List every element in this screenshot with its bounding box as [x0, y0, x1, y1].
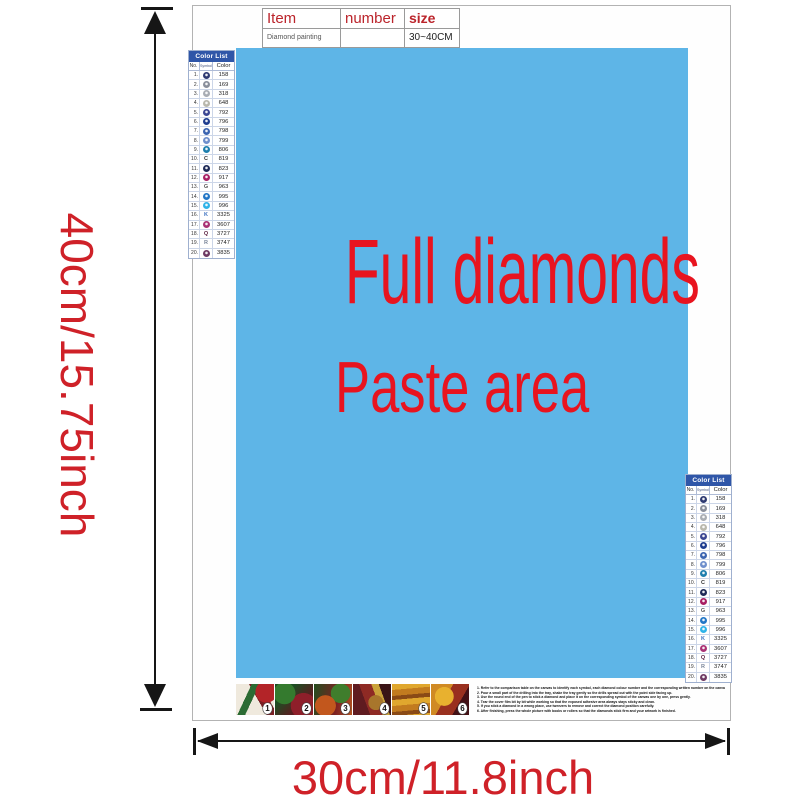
height-arrow-bottom-cap — [140, 708, 172, 711]
instruction-line: 1. Refer to the comparison table on the … — [477, 686, 725, 691]
color-row-number: 16. — [686, 635, 697, 643]
color-row: 2.169 — [686, 504, 731, 513]
color-row-symbol — [697, 673, 710, 682]
color-row-number: 11. — [686, 588, 697, 596]
diamond-color-dot — [203, 193, 210, 200]
color-row-code: 806 — [710, 570, 731, 578]
color-row: 10.C819 — [189, 155, 234, 164]
color-row-number: 4. — [189, 99, 200, 107]
height-arrow-line — [154, 16, 156, 704]
diamond-color-dot — [700, 505, 707, 512]
instructions-block: 1. Refer to the comparison table on the … — [477, 686, 725, 713]
color-row-symbol — [200, 164, 213, 172]
color-row-number: 2. — [686, 504, 697, 512]
color-row-symbol: C — [200, 155, 213, 163]
color-row-code: 823 — [710, 588, 731, 596]
color-row-symbol — [200, 146, 213, 154]
color-row: 15.996 — [686, 626, 731, 635]
diamond-color-dot — [203, 174, 210, 181]
color-row: 2.169 — [189, 80, 234, 89]
color-row-number: 5. — [189, 108, 200, 116]
color-row-symbol — [697, 626, 710, 634]
color-row-code: 823 — [213, 164, 234, 172]
color-row-code: 796 — [710, 542, 731, 550]
color-row-number: 6. — [686, 542, 697, 550]
diamond-symbol-letter: R — [701, 664, 705, 670]
width-arrow-left-cap — [193, 728, 196, 755]
diamond-color-dot — [700, 496, 707, 503]
color-row-symbol: G — [697, 607, 710, 615]
color-row-symbol — [200, 202, 213, 210]
color-row-symbol: Q — [200, 230, 213, 238]
color-row: 11.823 — [686, 588, 731, 597]
item-table: Item number size Diamond painting 30~40C… — [262, 8, 460, 48]
steps-strip: 123456 — [236, 684, 470, 715]
color-row-symbol — [200, 90, 213, 98]
color-row-code: 995 — [710, 616, 731, 624]
color-row-code: 3747 — [710, 663, 731, 671]
diamond-color-dot — [203, 202, 210, 209]
color-row-code: 798 — [213, 127, 234, 135]
color-row-number: 11. — [189, 164, 200, 172]
color-list-left: Color List No. Symbol Color 1.1582.1693.… — [188, 50, 235, 259]
color-row: 17.3607 — [189, 221, 234, 230]
color-row-symbol — [697, 616, 710, 624]
color-row-code: 158 — [710, 495, 731, 503]
color-row-symbol — [200, 136, 213, 144]
color-row: 18.Q3727 — [686, 654, 731, 663]
diamond-color-dot — [700, 514, 707, 521]
step-image-5: 5 — [392, 684, 430, 715]
color-row: 16.K3325 — [686, 635, 731, 644]
color-list-title: Color List — [686, 475, 731, 486]
color-row-code: 648 — [213, 99, 234, 107]
diamond-symbol-letter: G — [204, 184, 208, 190]
color-row-code: 3325 — [213, 211, 234, 219]
diamond-color-dot — [700, 524, 707, 531]
color-row-symbol — [200, 80, 213, 88]
color-row: 8.799 — [189, 136, 234, 145]
diamond-symbol-letter: R — [204, 240, 208, 246]
color-row-number: 10. — [686, 579, 697, 587]
color-row-symbol — [697, 495, 710, 503]
color-row-code: 3325 — [710, 635, 731, 643]
diamond-color-dot — [203, 250, 210, 257]
diamond-color-dot — [700, 542, 707, 549]
diamond-color-dot — [700, 589, 707, 596]
step-image-2: 2 — [275, 684, 313, 715]
diamond-color-dot — [203, 90, 210, 97]
height-dimension-label: 40cm/15.75inch — [50, 213, 104, 538]
color-row-symbol — [697, 542, 710, 550]
color-row-code: 799 — [213, 136, 234, 144]
color-row: 6.796 — [686, 542, 731, 551]
item-table-header-row: Item number size — [263, 9, 459, 29]
color-row-number: 6. — [189, 118, 200, 126]
color-row-code: 819 — [710, 579, 731, 587]
color-row-number: 13. — [686, 607, 697, 615]
diamond-color-dot — [203, 81, 210, 88]
step-number-badge: 5 — [419, 703, 428, 714]
color-row: 18.Q3727 — [189, 230, 234, 239]
color-row-symbol — [697, 598, 710, 606]
color-row: 19.R3747 — [686, 663, 731, 672]
color-row-symbol — [697, 560, 710, 568]
height-arrow-top-cap — [141, 7, 173, 10]
no-column-header: No. — [189, 62, 200, 70]
number-value — [341, 29, 405, 48]
color-row: 5.792 — [686, 532, 731, 541]
diamond-color-dot — [203, 118, 210, 125]
arrow-down-icon — [144, 684, 166, 707]
color-row: 14.995 — [686, 616, 731, 625]
color-row-code: 798 — [710, 551, 731, 559]
color-row-code: 917 — [213, 174, 234, 182]
step-image-3: 3 — [314, 684, 352, 715]
color-row-symbol: R — [200, 239, 213, 247]
color-row: 10.C819 — [686, 579, 731, 588]
color-row: 17.3607 — [686, 645, 731, 654]
color-row: 7.798 — [686, 551, 731, 560]
size-value: 30~40CM — [405, 29, 459, 48]
color-row-code: 806 — [213, 146, 234, 154]
color-row-code: 799 — [710, 560, 731, 568]
diamond-color-dot — [203, 221, 210, 228]
color-row-symbol — [697, 514, 710, 522]
step-number-badge: 6 — [458, 703, 467, 714]
arrow-right-icon — [705, 733, 726, 749]
number-header: number — [341, 9, 405, 28]
color-row-number: 9. — [686, 570, 697, 578]
color-row-code: 318 — [710, 514, 731, 522]
color-row-symbol — [200, 221, 213, 229]
color-list-title: Color List — [189, 51, 234, 62]
color-row-symbol — [200, 127, 213, 135]
diamond-color-dot — [203, 165, 210, 172]
product-diagram: Item number size Diamond painting 30~40C… — [0, 0, 800, 800]
color-row-number: 20. — [686, 673, 697, 682]
arrow-left-icon — [197, 733, 218, 749]
diamond-color-dot — [203, 137, 210, 144]
size-header: size — [405, 9, 459, 28]
item-table-value-row: Diamond painting 30~40CM — [263, 29, 459, 48]
color-row-symbol: C — [697, 579, 710, 587]
symbol-column-header: Symbol — [200, 62, 213, 70]
color-row-number: 17. — [189, 221, 200, 229]
color-row-code: 3607 — [710, 645, 731, 653]
color-row-symbol — [200, 192, 213, 200]
item-header: Item — [263, 9, 341, 28]
color-row: 9.806 — [189, 146, 234, 155]
color-row-code: 963 — [213, 183, 234, 191]
no-column-header: No. — [686, 486, 697, 494]
color-row-symbol: R — [697, 663, 710, 671]
diamond-color-dot — [203, 146, 210, 153]
color-row-number: 5. — [686, 532, 697, 540]
color-row-number: 17. — [686, 645, 697, 653]
step-number-badge: 4 — [380, 703, 389, 714]
color-row: 7.798 — [189, 127, 234, 136]
arrow-up-icon — [144, 11, 166, 34]
step-image-6: 6 — [431, 684, 469, 715]
color-row-number: 1. — [686, 495, 697, 503]
diamond-symbol-letter: Q — [701, 655, 705, 661]
color-row-number: 14. — [189, 192, 200, 200]
color-row-number: 12. — [189, 174, 200, 182]
color-row-code: 3835 — [213, 249, 234, 258]
color-row-code: 169 — [213, 80, 234, 88]
color-row-symbol — [697, 551, 710, 559]
color-row-code: 819 — [213, 155, 234, 163]
color-list-rows: 1.1582.1693.3184.6485.7926.7967.7988.799… — [189, 71, 234, 258]
color-row-number: 15. — [189, 202, 200, 210]
diamond-color-dot — [700, 552, 707, 559]
color-row-symbol — [697, 532, 710, 540]
color-row-number: 3. — [686, 514, 697, 522]
color-row-number: 4. — [686, 523, 697, 531]
color-row-number: 7. — [686, 551, 697, 559]
color-row-symbol — [200, 249, 213, 258]
color-row-number: 19. — [686, 663, 697, 671]
diamond-symbol-letter: K — [701, 636, 705, 642]
color-row: 15.996 — [189, 202, 234, 211]
paste-area-title-text: Full diamonds — [345, 226, 700, 318]
color-row-symbol — [697, 523, 710, 531]
color-row-number: 3. — [189, 90, 200, 98]
color-row-code: 3607 — [213, 221, 234, 229]
width-dimension-label: 30cm/11.8inch — [292, 750, 594, 800]
color-list-rows: 1.1582.1693.3184.6485.7926.7967.7988.799… — [686, 495, 731, 682]
color-row: 3.318 — [189, 90, 234, 99]
color-row-number: 18. — [189, 230, 200, 238]
color-row-symbol: K — [200, 211, 213, 219]
step-image-4: 4 — [353, 684, 391, 715]
color-row: 19.R3747 — [189, 239, 234, 248]
step-number-badge: 3 — [341, 703, 350, 714]
color-row-code: 3727 — [710, 654, 731, 662]
diamond-color-dot — [203, 72, 210, 79]
instruction-line: 3. Use the round end of the pen to stick… — [477, 695, 725, 700]
color-column-header: Color — [213, 62, 234, 70]
diamond-color-dot — [700, 561, 707, 568]
color-row-code: 792 — [213, 108, 234, 116]
color-row-number: 8. — [189, 136, 200, 144]
color-row-code: 996 — [213, 202, 234, 210]
color-row: 12.917 — [686, 598, 731, 607]
step-number-badge: 2 — [302, 703, 311, 714]
paste-area-subtitle-text: Paste area — [335, 352, 589, 424]
color-row-code: 3835 — [710, 673, 731, 682]
color-row-number: 20. — [189, 249, 200, 258]
diamond-color-dot — [700, 674, 707, 681]
color-row-symbol — [697, 504, 710, 512]
color-row-number: 14. — [686, 616, 697, 624]
color-row: 16.K3325 — [189, 211, 234, 220]
item-value: Diamond painting — [263, 29, 341, 48]
color-row-code: 318 — [213, 90, 234, 98]
diamond-color-dot — [700, 570, 707, 577]
color-row-number: 10. — [189, 155, 200, 163]
color-list-column-headers: No. Symbol Color — [686, 486, 731, 495]
color-row-number: 7. — [189, 127, 200, 135]
color-row: 1.158 — [189, 71, 234, 80]
color-row-code: 996 — [710, 626, 731, 634]
color-row-number: 19. — [189, 239, 200, 247]
color-row-number: 13. — [189, 183, 200, 191]
diamond-color-dot — [700, 645, 707, 652]
color-row-symbol — [697, 645, 710, 653]
color-row: 8.799 — [686, 560, 731, 569]
step-number-badge: 1 — [263, 703, 272, 714]
color-row-symbol — [200, 118, 213, 126]
diamond-symbol-letter: C — [701, 580, 705, 586]
diamond-color-dot — [203, 109, 210, 116]
color-list-column-headers: No. Symbol Color — [189, 62, 234, 71]
color-row-number: 15. — [686, 626, 697, 634]
color-row: 4.648 — [189, 99, 234, 108]
color-row: 5.792 — [189, 108, 234, 117]
color-row-code: 169 — [710, 504, 731, 512]
color-row-code: 796 — [213, 118, 234, 126]
color-row: 1.158 — [686, 495, 731, 504]
color-row: 14.995 — [189, 192, 234, 201]
color-row-number: 2. — [189, 80, 200, 88]
color-row-symbol — [200, 71, 213, 79]
color-row-symbol: K — [697, 635, 710, 643]
diamond-symbol-letter: K — [204, 212, 208, 218]
color-row-number: 16. — [189, 211, 200, 219]
color-row: 13.G963 — [189, 183, 234, 192]
color-row: 6.796 — [189, 118, 234, 127]
color-row-code: 917 — [710, 598, 731, 606]
color-row-symbol: G — [200, 183, 213, 191]
color-row-code: 792 — [710, 532, 731, 540]
color-row-number: 9. — [189, 146, 200, 154]
color-row-number: 8. — [686, 560, 697, 568]
color-row: 12.917 — [189, 174, 234, 183]
color-row-code: 963 — [710, 607, 731, 615]
color-row-number: 1. — [189, 71, 200, 79]
color-row-number: 18. — [686, 654, 697, 662]
paste-area-subtitle: Paste area — [236, 352, 688, 424]
color-list-right: Color List No. Symbol Color 1.1582.1693.… — [685, 474, 732, 683]
color-column-header: Color — [710, 486, 731, 494]
color-row: 20.3835 — [686, 673, 731, 682]
diamond-color-dot — [700, 598, 707, 605]
color-row: 3.318 — [686, 514, 731, 523]
diamond-symbol-letter: Q — [204, 231, 208, 237]
width-arrow-line — [198, 740, 725, 742]
color-row: 20.3835 — [189, 249, 234, 258]
color-row-symbol — [697, 570, 710, 578]
color-row-code: 648 — [710, 523, 731, 531]
color-row-number: 12. — [686, 598, 697, 606]
instruction-line: 6. After finishing, press the whole pict… — [477, 709, 725, 714]
color-row: 11.823 — [189, 164, 234, 173]
diamond-color-dot — [203, 100, 210, 107]
diamond-symbol-letter: C — [204, 156, 208, 162]
color-row-code: 995 — [213, 192, 234, 200]
step-image-1: 1 — [236, 684, 274, 715]
color-row: 9.806 — [686, 570, 731, 579]
color-row-code: 3727 — [213, 230, 234, 238]
diamond-symbol-letter: G — [701, 608, 705, 614]
paste-area-title: Full diamonds — [236, 226, 688, 318]
symbol-column-header: Symbol — [697, 486, 710, 494]
color-row-symbol: Q — [697, 654, 710, 662]
color-row-symbol — [697, 588, 710, 596]
color-row-symbol — [200, 174, 213, 182]
color-row: 4.648 — [686, 523, 731, 532]
color-row: 13.G963 — [686, 607, 731, 616]
diamond-color-dot — [700, 617, 707, 624]
color-row-symbol — [200, 108, 213, 116]
width-arrow-right-cap — [727, 728, 730, 755]
diamond-color-dot — [203, 128, 210, 135]
color-row-symbol — [200, 99, 213, 107]
color-row-code: 3747 — [213, 239, 234, 247]
color-row-code: 158 — [213, 71, 234, 79]
diamond-color-dot — [700, 533, 707, 540]
diamond-color-dot — [700, 626, 707, 633]
